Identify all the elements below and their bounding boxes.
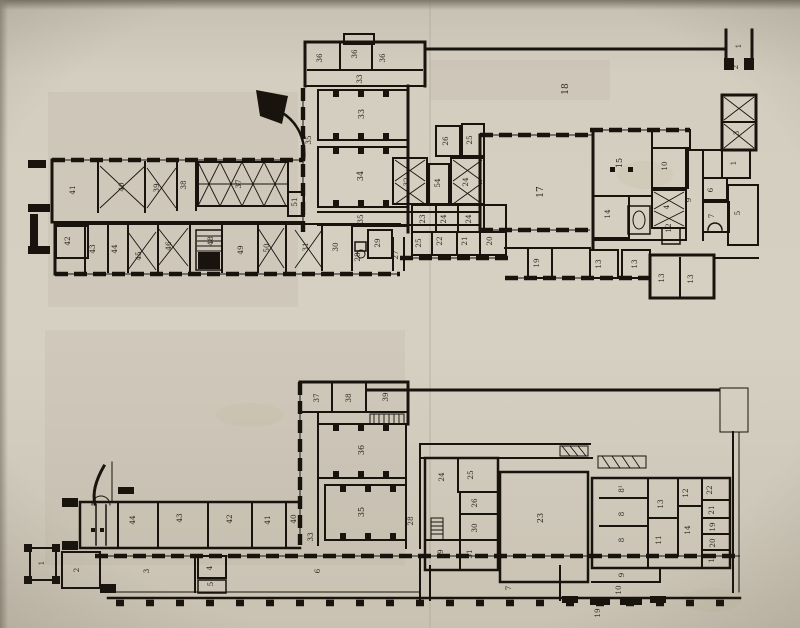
- scanned-floor-plan-plate: 3636363333353451354140393837424344454648…: [0, 0, 800, 628]
- page-edge-shading: [0, 0, 800, 628]
- vignette: [0, 0, 800, 628]
